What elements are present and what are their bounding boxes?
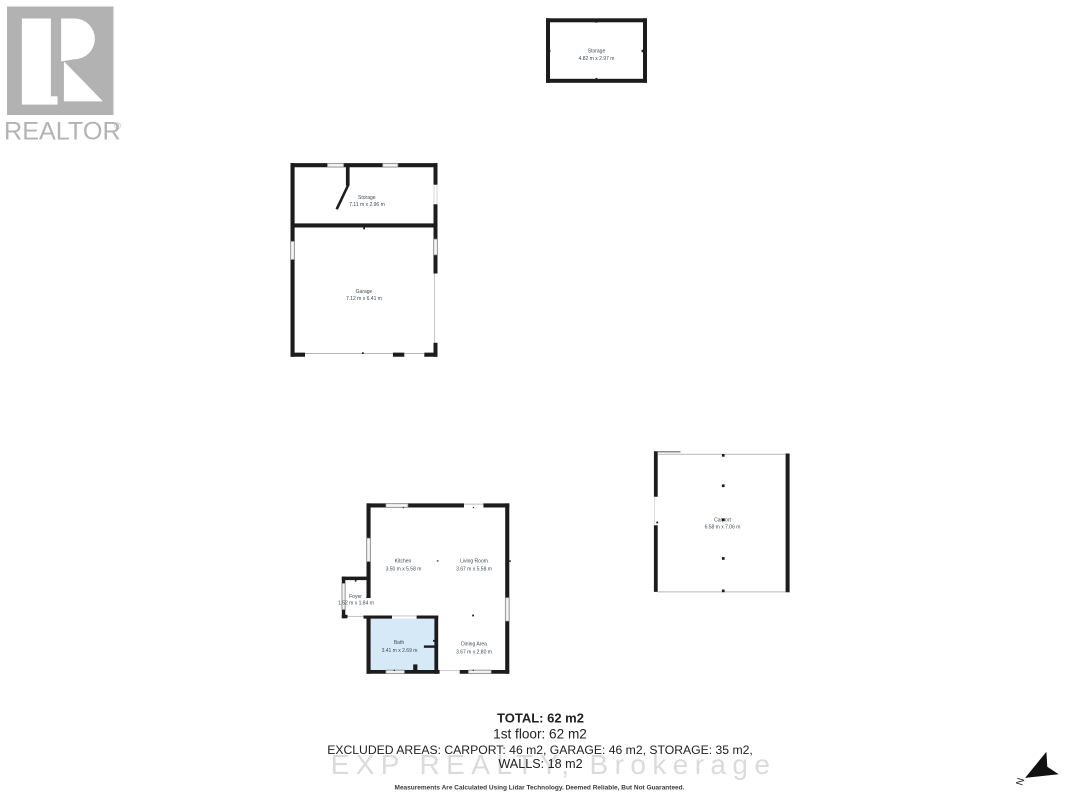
svg-text:Bath: Bath <box>394 640 405 646</box>
svg-text:1st floor: 62 m2: 1st floor: 62 m2 <box>493 726 587 741</box>
svg-text:Measurements Are Calculated Us: Measurements Are Calculated Using Lidar … <box>395 784 685 791</box>
svg-text:Living Room: Living Room <box>460 559 488 565</box>
svg-text:3.41 m x 2.69 m: 3.41 m x 2.69 m <box>382 648 418 654</box>
svg-text:4.82 m x 2.97 m: 4.82 m x 2.97 m <box>579 56 615 62</box>
svg-text:EXCLUDED AREAS: CARPORT: 46 m2: EXCLUDED AREAS: CARPORT: 46 m2, GARAGE: … <box>327 743 753 757</box>
svg-text:WALLS: 18 m2: WALLS: 18 m2 <box>498 757 582 771</box>
svg-text:1.52 m x 1.84 m: 1.52 m x 1.84 m <box>338 601 374 607</box>
svg-text:REALTOR: REALTOR <box>4 118 121 146</box>
svg-text:Dining Area: Dining Area <box>461 641 487 647</box>
svg-text:Garage: Garage <box>356 289 373 295</box>
svg-text:Storage: Storage <box>588 48 606 54</box>
svg-text:TOTAL: 62 m2: TOTAL: 62 m2 <box>497 710 584 725</box>
svg-text:3.67 m x 2.80 m: 3.67 m x 2.80 m <box>456 650 492 656</box>
svg-text:Storage: Storage <box>358 195 376 201</box>
svg-text:3.50 m x 5.58 m: 3.50 m x 5.58 m <box>386 567 422 573</box>
svg-text:7.11 m x 2.96 m: 7.11 m x 2.96 m <box>349 202 384 208</box>
svg-text:6.58 m x 7.06 m: 6.58 m x 7.06 m <box>705 524 741 530</box>
svg-text:7.12 m x 6.41 m: 7.12 m x 6.41 m <box>346 296 382 302</box>
svg-text:Kitchen: Kitchen <box>395 559 412 565</box>
svg-text:Foyer: Foyer <box>349 594 362 600</box>
svg-text:3.67 m x 5.58 m: 3.67 m x 5.58 m <box>456 567 492 573</box>
svg-text:®: ® <box>114 121 121 132</box>
